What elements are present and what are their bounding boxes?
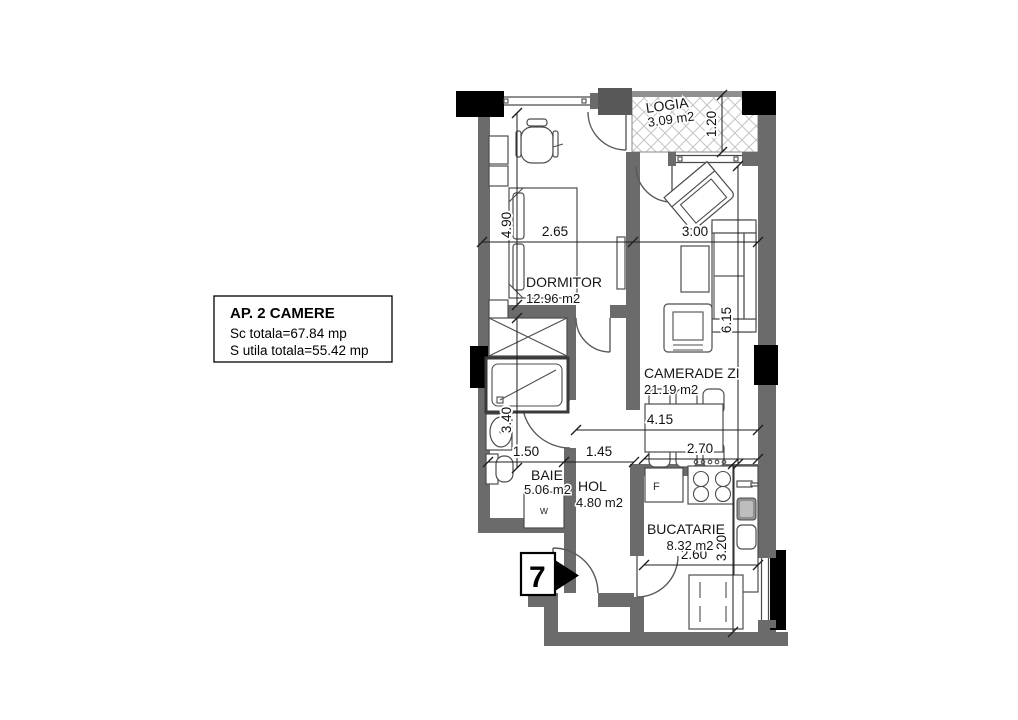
armchair2-icon xyxy=(664,304,712,352)
room-label-hol: HOL 4.80 m2 xyxy=(576,478,623,510)
living-window xyxy=(676,156,742,163)
bedroom-door xyxy=(576,318,610,352)
stove-icon xyxy=(688,460,736,504)
svg-text:8.32 m2: 8.32 m2 xyxy=(667,538,714,553)
dim-span-270: 2.70 xyxy=(687,441,713,456)
dim-hall-width: 1.45 xyxy=(586,444,612,459)
dim-living-width: 3.00 xyxy=(682,224,708,239)
svg-text:4.80 m2: 4.80 m2 xyxy=(576,495,623,510)
dim-bedroom-width: 2.65 xyxy=(542,224,568,239)
bedroom-window xyxy=(504,97,590,105)
svg-text:HOL: HOL xyxy=(578,478,607,494)
bedroom-top-door xyxy=(588,112,626,150)
room-label-camera-zi: CAMERADE ZI 21.19 m2 xyxy=(644,365,740,397)
kitchen-door xyxy=(637,556,678,597)
dim-bath-height: 3.40 xyxy=(499,407,514,433)
svg-text:BAIE: BAIE xyxy=(531,467,563,483)
apartment-usable-area: S utila totala=55.42 mp xyxy=(230,343,368,358)
dim-living-height: 6.15 xyxy=(719,307,734,333)
apartment-title: AP. 2 CAMERE xyxy=(230,305,335,322)
svg-text:12.96 m2: 12.96 m2 xyxy=(526,291,580,306)
dim-kitchen-height: 3.20 xyxy=(714,535,729,561)
kitchen-table-icon xyxy=(689,575,743,629)
fridge-icon: F xyxy=(645,468,683,502)
office-chair-icon xyxy=(516,119,563,163)
floor-plan: w F xyxy=(0,0,1018,720)
svg-text:5.06 m2: 5.06 m2 xyxy=(524,482,571,497)
washing-machine-icon: w xyxy=(524,492,564,528)
apartment-total-area: Sc totala=67.84 mp xyxy=(230,326,347,341)
entrance-number: 7 xyxy=(529,561,546,594)
svg-text:CAMERADE ZI: CAMERADE ZI xyxy=(644,365,740,381)
floor-plan-page: w F xyxy=(0,0,1018,720)
toilet-icon xyxy=(486,454,513,484)
dim-logia-depth: 1.20 xyxy=(704,111,719,137)
dim-bath-width: 1.50 xyxy=(513,444,539,459)
apartment-info-box: AP. 2 CAMERE Sc totala=67.84 mp S utila … xyxy=(214,296,392,362)
coffee-table-icon xyxy=(681,246,709,292)
svg-text:21.19 m2: 21.19 m2 xyxy=(644,382,698,397)
kitchen-window xyxy=(762,558,769,620)
room-label-baie: BAIE 5.06 m2 xyxy=(524,467,571,497)
wardrobe-icon xyxy=(489,318,567,356)
tv-icon xyxy=(617,237,625,289)
svg-text:DORMITOR: DORMITOR xyxy=(526,274,602,290)
kitchen-sink-icon xyxy=(734,466,758,592)
shower-icon xyxy=(486,358,568,412)
svg-text:F: F xyxy=(653,481,660,493)
svg-text:BUCATARIE: BUCATARIE xyxy=(647,521,725,537)
dim-span-415: 4.15 xyxy=(647,412,673,427)
svg-text:w: w xyxy=(539,505,548,517)
dim-bedroom-height: 4.90 xyxy=(499,212,514,238)
